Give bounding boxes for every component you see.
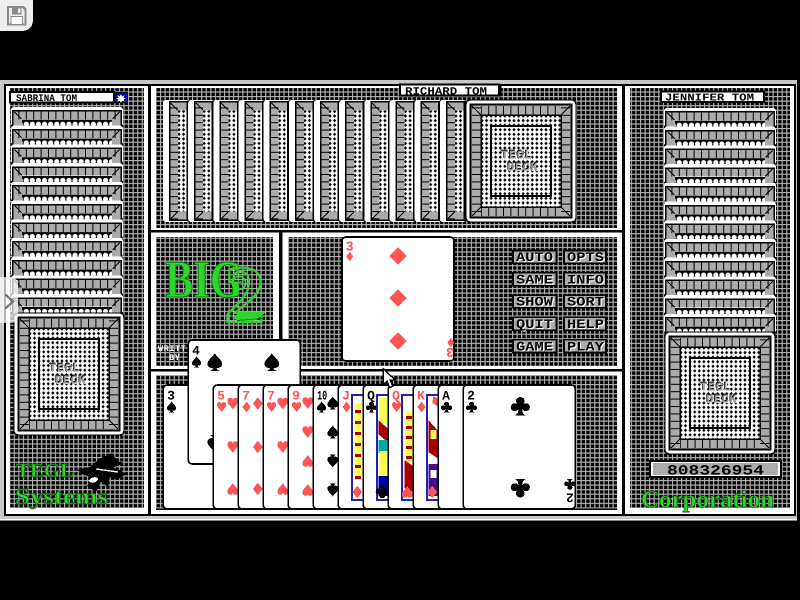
svg-text:3: 3 xyxy=(446,343,454,358)
svg-text:QUIT: QUIT xyxy=(516,317,553,332)
svg-text:4: 4 xyxy=(192,344,200,359)
svg-text:808326954: 808326954 xyxy=(667,464,764,480)
svg-text:SHOW: SHOW xyxy=(516,295,553,310)
svg-text:2: 2 xyxy=(566,490,574,505)
svg-text:JENNIFER TOM: JENNIFER TOM xyxy=(665,93,754,105)
svg-text:Corporation: Corporation xyxy=(641,487,774,513)
svg-text:GAME: GAME xyxy=(516,339,553,354)
svg-text:K: K xyxy=(417,389,425,404)
svg-text:SABRINA TOM: SABRINA TOM xyxy=(16,94,77,105)
svg-text:3: 3 xyxy=(167,389,175,404)
svg-text:7: 7 xyxy=(267,389,275,404)
svg-text:2: 2 xyxy=(467,389,475,404)
svg-text:10: 10 xyxy=(317,389,327,404)
svg-text:2: 2 xyxy=(224,249,265,340)
svg-text:HELP: HELP xyxy=(567,317,604,332)
svg-text:RICHARD TOM: RICHARD TOM xyxy=(405,87,487,99)
svg-text:OPTS: OPTS xyxy=(567,250,604,265)
svg-text:Q: Q xyxy=(392,389,400,404)
svg-text:BY: BY xyxy=(169,353,181,363)
svg-text:PLAY: PLAY xyxy=(567,339,604,354)
svg-text:AUTO: AUTO xyxy=(516,250,553,265)
svg-text:INFO: INFO xyxy=(567,272,604,287)
svg-text:SORT: SORT xyxy=(567,295,604,310)
svg-text:5: 5 xyxy=(217,389,225,404)
svg-text:7: 7 xyxy=(242,389,250,404)
svg-text:Q: Q xyxy=(367,389,375,404)
svg-text:SAME: SAME xyxy=(516,272,553,287)
svg-text:A: A xyxy=(442,389,450,404)
svg-text:J: J xyxy=(342,389,350,404)
svg-text:TEGL: TEGL xyxy=(16,460,74,482)
svg-text:9: 9 xyxy=(292,389,300,404)
